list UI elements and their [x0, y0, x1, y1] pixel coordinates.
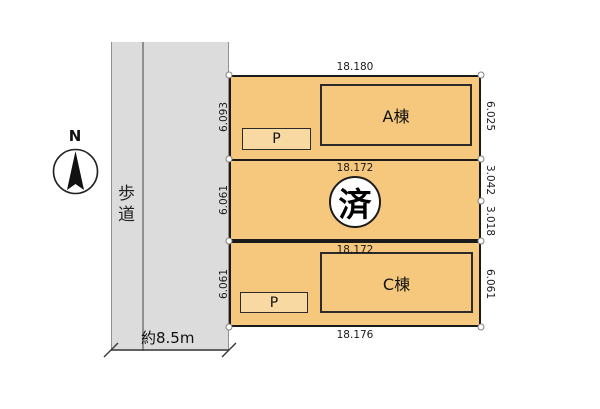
survey-point-marker: [478, 198, 485, 205]
dim-lot-a-right: 6.025: [484, 101, 496, 131]
north-arrow-icon: [52, 148, 99, 195]
lot-a: A棟 P: [229, 75, 481, 161]
dim-lot-b-top: 18.172: [337, 162, 374, 174]
parking-c: P: [240, 292, 308, 313]
survey-point-marker: [226, 238, 233, 245]
north-label: N: [69, 127, 82, 145]
building-c: C棟: [320, 252, 473, 313]
survey-point-marker: [478, 324, 485, 331]
survey-point-marker: [226, 72, 233, 79]
survey-point-marker: [226, 324, 233, 331]
survey-point-marker: [226, 156, 233, 163]
sidewalk-divider-line: [142, 42, 144, 351]
dim-lot-c-bottom: 18.176: [337, 329, 374, 341]
building-a: A棟: [320, 84, 472, 146]
survey-point-marker: [478, 156, 485, 163]
dim-lot-b-right-upper: 3.042: [484, 165, 496, 195]
dim-lot-c-left: 6.061: [218, 269, 230, 299]
survey-point-marker: [478, 72, 485, 79]
dim-lot-b-right-lower: 3.018: [484, 206, 496, 236]
parking-a: P: [242, 128, 311, 150]
site-plan-diagram: N 歩道 約8.5m A棟 P 済 C棟 P 18.180 18.172 18.…: [0, 0, 600, 409]
dim-lot-c-right: 6.061: [484, 269, 496, 299]
dim-lot-a-top: 18.180: [337, 61, 374, 73]
dim-lot-a-left: 6.093: [218, 102, 230, 132]
sidewalk-label: 歩道: [114, 184, 134, 226]
road-width-dimension-line: [100, 338, 240, 360]
survey-point-marker: [478, 238, 485, 245]
sold-badge: 済: [329, 176, 381, 228]
dim-lot-c-top: 18.172: [337, 244, 374, 256]
dim-lot-b-left: 6.061: [218, 185, 230, 215]
